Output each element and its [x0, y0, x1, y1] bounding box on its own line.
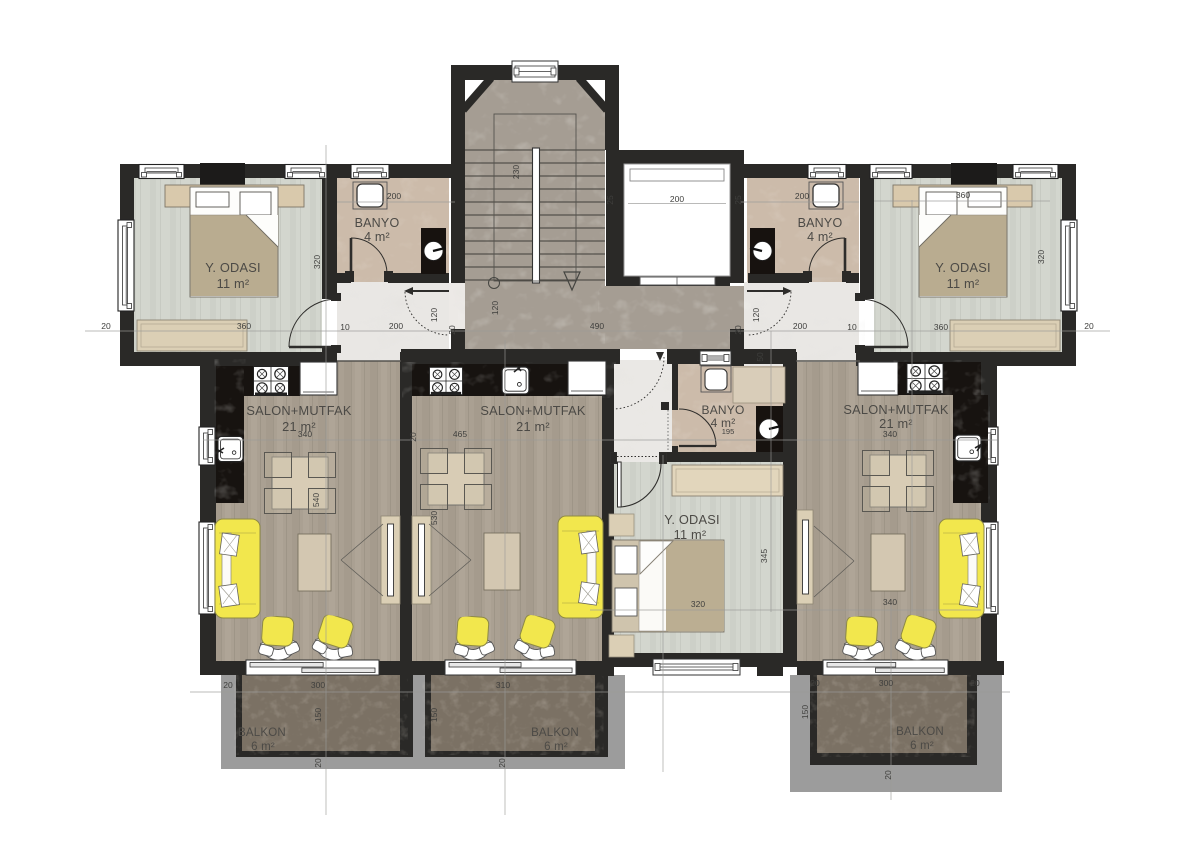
svg-text:150: 150 [800, 705, 810, 719]
svg-text:Y. ODASI: Y. ODASI [664, 512, 719, 527]
svg-text:150: 150 [429, 708, 439, 722]
svg-text:200: 200 [670, 194, 684, 204]
svg-text:490: 490 [590, 321, 604, 331]
svg-text:BANYO: BANYO [355, 216, 400, 230]
svg-text:50: 50 [755, 352, 765, 362]
svg-text:195: 195 [722, 427, 735, 436]
svg-text:6 m²: 6 m² [251, 741, 275, 753]
svg-text:Y. ODASI: Y. ODASI [935, 260, 990, 275]
svg-text:20: 20 [883, 770, 893, 780]
svg-text:20: 20 [970, 678, 980, 688]
svg-text:530: 530 [429, 511, 439, 525]
svg-text:465: 465 [453, 429, 467, 439]
svg-text:SALON+MUTFAK: SALON+MUTFAK [843, 402, 948, 417]
svg-text:6 m²: 6 m² [544, 741, 568, 753]
svg-text:320: 320 [691, 599, 705, 609]
svg-text:6 m²: 6 m² [910, 740, 934, 752]
svg-text:20: 20 [101, 321, 111, 331]
svg-text:11 m²: 11 m² [217, 276, 250, 291]
svg-text:120: 120 [751, 308, 761, 322]
svg-text:4 m²: 4 m² [807, 230, 833, 244]
svg-text:360: 360 [237, 321, 251, 331]
svg-text:320: 320 [312, 255, 322, 269]
svg-text:300: 300 [311, 680, 325, 690]
svg-text:SALON+MUTFAK: SALON+MUTFAK [246, 403, 351, 418]
svg-text:20: 20 [313, 758, 323, 768]
svg-text:20: 20 [497, 758, 507, 768]
svg-text:11 m²: 11 m² [674, 527, 707, 542]
svg-text:200: 200 [387, 191, 401, 201]
svg-text:540: 540 [311, 493, 321, 507]
svg-text:4 m²: 4 m² [364, 230, 390, 244]
svg-text:20: 20 [810, 678, 820, 688]
svg-text:345: 345 [759, 549, 769, 563]
svg-text:BANYO: BANYO [701, 403, 744, 417]
svg-text:BANYO: BANYO [798, 216, 843, 230]
svg-text:320: 320 [1036, 250, 1046, 264]
svg-text:120: 120 [429, 308, 439, 322]
svg-text:20: 20 [1084, 321, 1094, 331]
svg-text:340: 340 [883, 429, 897, 439]
svg-text:230: 230 [511, 165, 521, 179]
svg-text:360: 360 [956, 190, 970, 200]
svg-text:25: 25 [605, 195, 615, 205]
svg-text:310: 310 [496, 680, 510, 690]
svg-text:20: 20 [733, 325, 743, 335]
svg-text:21 m²: 21 m² [516, 419, 550, 434]
svg-text:300: 300 [879, 678, 893, 688]
svg-text:20: 20 [447, 325, 457, 335]
svg-text:25: 25 [733, 195, 743, 205]
svg-text:10: 10 [847, 322, 857, 332]
svg-text:150: 150 [313, 708, 323, 722]
svg-text:340: 340 [298, 429, 312, 439]
svg-text:BALKON: BALKON [531, 727, 579, 739]
svg-text:11 m²: 11 m² [947, 276, 980, 291]
svg-text:200: 200 [793, 321, 807, 331]
svg-text:360: 360 [934, 322, 948, 332]
svg-text:20: 20 [223, 680, 233, 690]
svg-text:120: 120 [490, 301, 500, 315]
svg-text:200: 200 [389, 321, 403, 331]
svg-text:20: 20 [408, 432, 418, 442]
svg-text:340: 340 [883, 597, 897, 607]
svg-text:SALON+MUTFAK: SALON+MUTFAK [480, 403, 585, 418]
svg-text:Y. ODASI: Y. ODASI [205, 260, 260, 275]
svg-text:10: 10 [340, 322, 350, 332]
svg-text:200: 200 [795, 191, 809, 201]
svg-text:BALKON: BALKON [896, 726, 944, 738]
svg-text:BALKON: BALKON [238, 727, 286, 739]
